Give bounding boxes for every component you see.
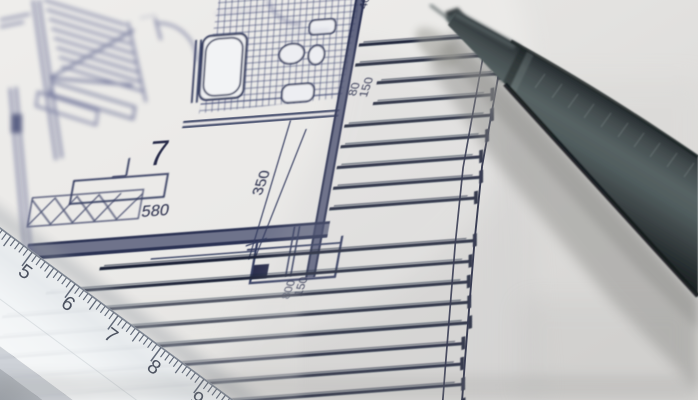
svg-text:580: 580 [140, 200, 171, 221]
